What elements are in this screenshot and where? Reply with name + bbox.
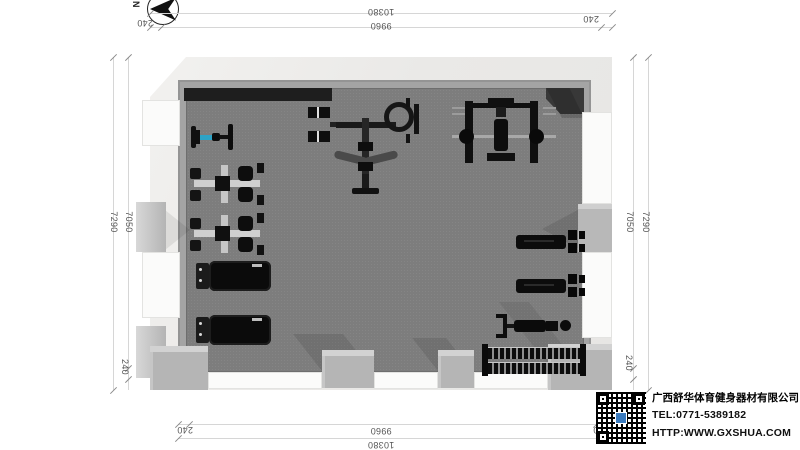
dim-text-left-overall: 7290 — [109, 200, 119, 244]
dim-line-bottom-inner — [178, 424, 607, 425]
window-left-1 — [142, 100, 180, 146]
dim-text-top-overall: 10380 — [353, 7, 409, 17]
company-website: HTTP:WWW.GXSHUA.COM — [652, 427, 791, 439]
plate-machine-1 — [516, 230, 586, 254]
dim-line-bottom-overall — [178, 438, 607, 439]
window-left-2 — [142, 252, 180, 318]
dumbbell-rack — [482, 344, 586, 376]
window-right-1 — [582, 112, 612, 204]
wall-pillar-bottom-1 — [322, 350, 374, 388]
dim-text-top-wall-left: 240 — [132, 18, 158, 28]
wall-pillar-bottom-2 — [438, 350, 474, 388]
window-bottom-1 — [208, 372, 322, 389]
dim-text-right-wall: 240 — [624, 349, 634, 377]
multi-station-gym — [308, 98, 426, 196]
dim-text-left-wall: 240 — [120, 353, 130, 381]
qr-code-icon — [596, 392, 646, 444]
qr-center-logo — [615, 412, 627, 424]
dim-text-left-inner: 7050 — [124, 200, 134, 244]
company-tel: TEL:0771-5389182 — [652, 409, 746, 421]
plate-machine-2 — [516, 274, 586, 298]
dim-text-bottom-wall-left: 240 — [172, 425, 198, 435]
dim-tick — [609, 24, 616, 31]
exercise-bike — [191, 122, 237, 152]
dim-text-top-wall-right: 240 — [578, 14, 604, 24]
dim-text-top-inner: 9960 — [353, 21, 409, 31]
strength-station-1 — [190, 163, 266, 205]
treadmill-2 — [196, 314, 274, 346]
floor-plan-canvas: N 10380 9960 240 240 9960 10380 240 240 … — [0, 0, 800, 450]
dim-tick — [609, 10, 616, 17]
smith-machine — [452, 98, 556, 170]
treadmill-1 — [196, 260, 274, 292]
window-right-2 — [582, 252, 612, 338]
strength-station-2 — [190, 213, 266, 255]
window-bottom-2 — [374, 372, 438, 389]
dim-text-bottom-inner: 9960 — [353, 426, 409, 436]
dim-text-right-overall: 7290 — [641, 200, 651, 244]
dim-tick — [110, 387, 117, 394]
dim-text-right-inner: 7050 — [625, 200, 635, 244]
compass-north-label: N — [131, 1, 141, 13]
wall-corner-bottom-left — [150, 346, 208, 390]
wall-pillar-left-1 — [136, 202, 166, 252]
dim-tick — [645, 387, 652, 394]
flat-bench — [496, 314, 574, 338]
company-name: 广西舒华体育健身器材有限公司 — [652, 390, 799, 405]
dim-text-bottom-overall: 10380 — [353, 440, 409, 450]
